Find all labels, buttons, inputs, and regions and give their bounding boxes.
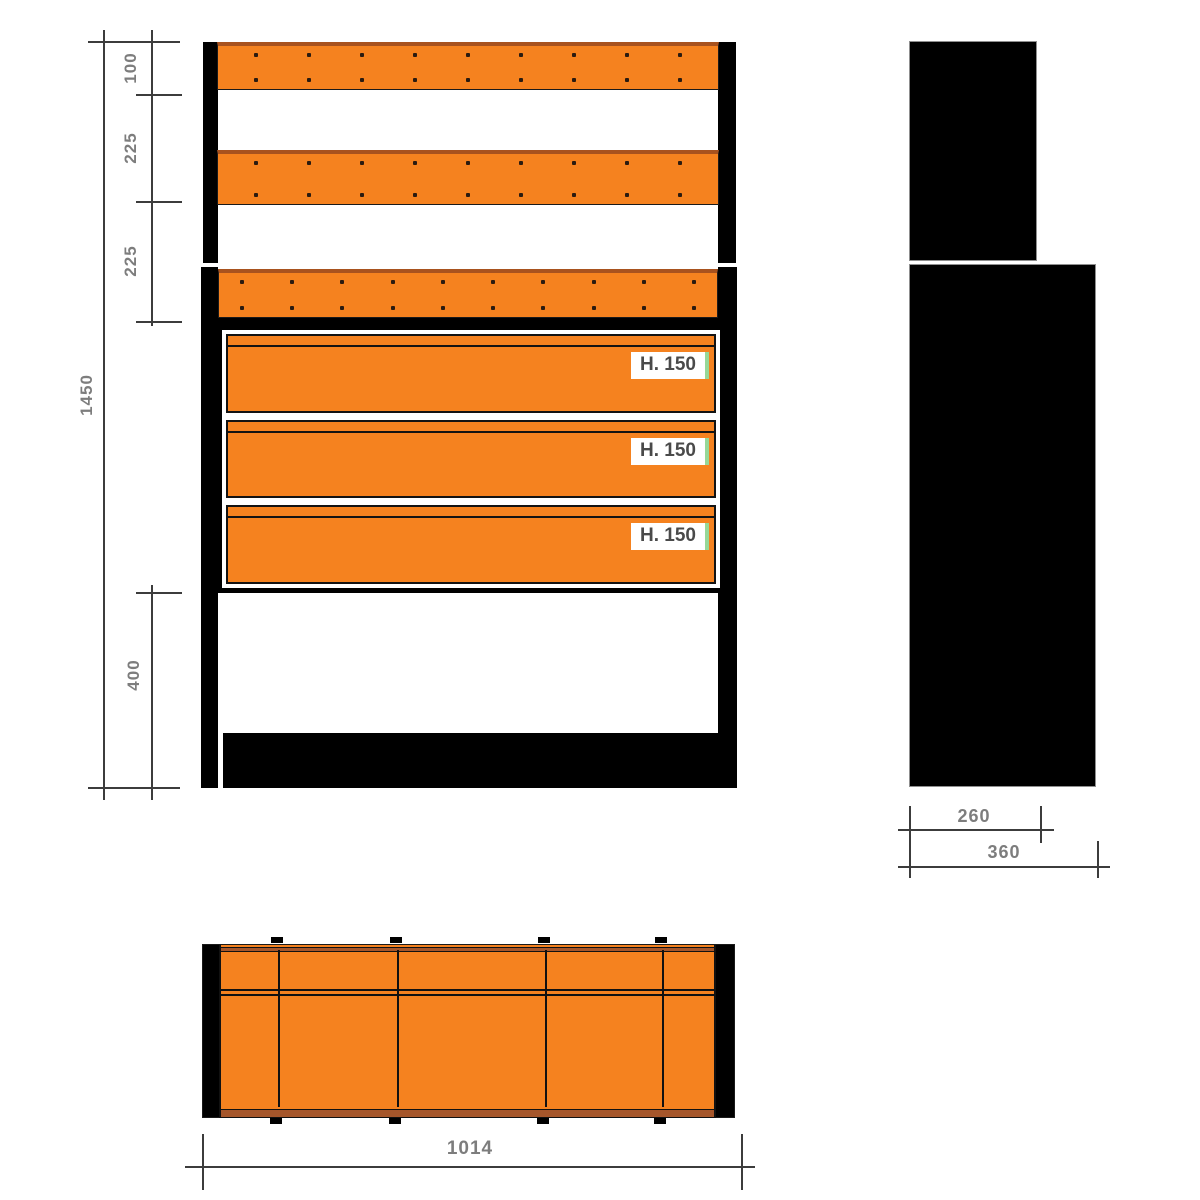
- drawer-1-face: H. 150: [228, 347, 714, 411]
- perforation-dot: [360, 78, 364, 82]
- dim-label-400: 400: [124, 645, 144, 705]
- front-lower-right-post: [718, 267, 737, 788]
- drawer-stack: H. 150 H. 150 H. 150: [222, 330, 720, 588]
- dim-tick: [136, 592, 182, 594]
- perforation-dot: [360, 161, 364, 165]
- drawer-1-height-label: H. 150: [631, 352, 709, 379]
- perforation-dot: [307, 53, 311, 57]
- drawer-1-top-strip: [228, 336, 714, 347]
- perforated-panel-top: [217, 42, 719, 90]
- perforation-dot: [307, 161, 311, 165]
- perforated-panel-cabinet: [218, 269, 718, 318]
- perforation-dot: [413, 193, 417, 197]
- perforation-dot: [290, 280, 294, 284]
- perforation-dot: [466, 161, 470, 165]
- drawer-1: H. 150: [226, 334, 716, 413]
- dim-label-225-lower: 225: [121, 231, 141, 291]
- perforation-dot: [391, 306, 395, 310]
- perforation-dot: [240, 280, 244, 284]
- perforation-dot: [642, 306, 646, 310]
- perforation-dot: [441, 280, 445, 284]
- perforation-dot: [692, 280, 696, 284]
- drawer-2: H. 150: [226, 420, 716, 499]
- perforated-panel-middle: [217, 150, 719, 205]
- perforation-dot: [290, 306, 294, 310]
- dim-tick: [202, 1134, 204, 1190]
- perforation-dot: [572, 161, 576, 165]
- top-view-inner-frame: [219, 945, 716, 1117]
- segment-dim-line-lower: [151, 585, 153, 800]
- bottom-plinth-panel: [223, 733, 718, 788]
- perforation-dot: [572, 78, 576, 82]
- perforation-dot: [625, 53, 629, 57]
- perforation-dot: [541, 306, 545, 310]
- perforation-dot: [254, 161, 258, 165]
- perforation-dot: [413, 161, 417, 165]
- dim-tick: [909, 806, 911, 878]
- top-view-body: [202, 944, 735, 1118]
- top-view-compartment-divider: [662, 950, 664, 1107]
- perforation-dot: [466, 193, 470, 197]
- perforation-dot: [491, 306, 495, 310]
- top-view-compartment-divider: [397, 950, 399, 1107]
- top-view-right-side-panel: [716, 945, 734, 1117]
- perforation-dot: [441, 306, 445, 310]
- dim-tick: [1097, 841, 1099, 878]
- perforation-dot: [391, 280, 395, 284]
- top-view-alignment-tick: [537, 1118, 549, 1124]
- perforation-dot: [642, 280, 646, 284]
- top-view-alignment-tick: [654, 1118, 666, 1124]
- perforation-dot: [519, 193, 523, 197]
- perforation-dot: [541, 280, 545, 284]
- perforation-dot: [413, 53, 417, 57]
- perforation-dot: [519, 53, 523, 57]
- dim-tick: [741, 1134, 743, 1190]
- perforation-dot: [572, 193, 576, 197]
- depth-260-dim-line: [898, 829, 1054, 831]
- top-view-compartment-divider: [545, 950, 547, 1107]
- dim-label-1014: 1014: [430, 1138, 510, 1160]
- perforation-dot: [340, 306, 344, 310]
- front-upper-left-post: [203, 42, 218, 263]
- top-view-left-side-panel: [203, 945, 219, 1117]
- perforation-dot: [625, 193, 629, 197]
- perforation-dot: [340, 280, 344, 284]
- dim-label-225-upper: 225: [121, 118, 141, 178]
- dim-label-100: 100: [121, 38, 141, 98]
- perforation-dot: [625, 161, 629, 165]
- perforation-dot: [466, 53, 470, 57]
- perforation-dot: [519, 161, 523, 165]
- perforation-dot: [678, 161, 682, 165]
- perforation-dot: [360, 53, 364, 57]
- top-view-alignment-tick: [538, 937, 550, 943]
- perforation-dot: [592, 280, 596, 284]
- drawer-3-top-strip: [228, 507, 714, 518]
- width-1014-dim-line: [185, 1166, 755, 1168]
- top-view-alignment-tick: [390, 937, 402, 943]
- top-view-alignment-tick: [389, 1118, 401, 1124]
- perforation-dot: [240, 306, 244, 310]
- top-view-compartment-divider: [278, 950, 280, 1107]
- perforation-dot: [678, 78, 682, 82]
- technical-drawing-canvas: H. 150 H. 150 H. 150: [0, 0, 1200, 1200]
- top-view-alignment-tick: [271, 937, 283, 943]
- perforation-dot: [254, 78, 258, 82]
- perforation-dot: [307, 193, 311, 197]
- perforation-dot: [307, 78, 311, 82]
- overall-height-dim-line: [103, 30, 105, 800]
- perforation-dot: [491, 280, 495, 284]
- perforation-dot: [692, 306, 696, 310]
- segment-dim-line-upper: [151, 30, 153, 326]
- dim-tick: [136, 321, 182, 323]
- perforation-dot: [678, 53, 682, 57]
- front-lower-left-post: [201, 267, 218, 788]
- perforation-dot: [360, 193, 364, 197]
- dim-tick: [1040, 806, 1042, 843]
- drawer-2-height-label: H. 150: [631, 438, 709, 465]
- perforation-dot: [254, 53, 258, 57]
- drawer-2-face: H. 150: [228, 433, 714, 497]
- top-view-alignment-tick: [655, 937, 667, 943]
- perforation-dot: [466, 78, 470, 82]
- perforation-dot: [625, 78, 629, 82]
- perforation-dot: [519, 78, 523, 82]
- perforation-dot: [254, 193, 258, 197]
- top-view-alignment-tick: [270, 1118, 282, 1124]
- drawer-3-height-label: H. 150: [631, 523, 709, 550]
- perforation-dot: [592, 306, 596, 310]
- dim-tick: [88, 787, 180, 789]
- dim-label-1450: 1450: [77, 365, 97, 425]
- drawer-2-top-strip: [228, 422, 714, 433]
- perforation-dot: [413, 78, 417, 82]
- side-view-lower-section: [909, 264, 1096, 787]
- front-upper-right-post: [718, 42, 736, 263]
- drawer-3: H. 150: [226, 505, 716, 584]
- dim-label-360: 360: [972, 842, 1036, 863]
- perforation-dot: [678, 193, 682, 197]
- depth-360-dim-line: [898, 866, 1110, 868]
- dim-tick: [136, 94, 182, 96]
- drawer-3-face: H. 150: [228, 518, 714, 582]
- perforation-dot: [572, 53, 576, 57]
- dim-tick: [136, 201, 182, 203]
- side-view-upper-section: [909, 41, 1037, 261]
- dim-label-260: 260: [942, 806, 1006, 827]
